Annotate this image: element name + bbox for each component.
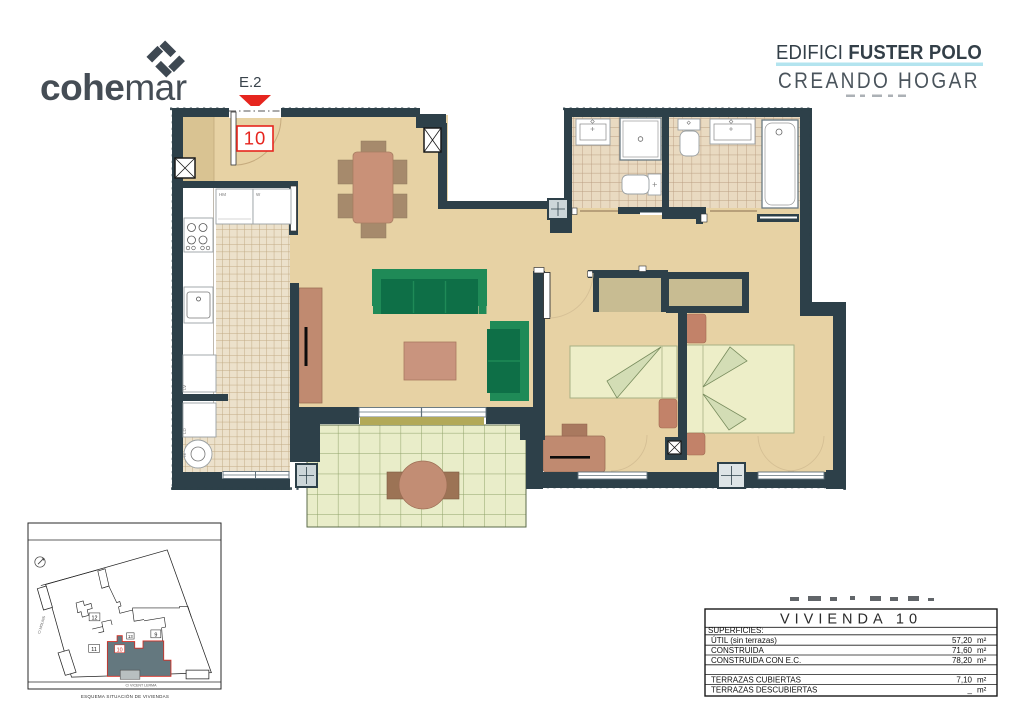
svg-text:m²: m²	[977, 686, 987, 695]
svg-text:9: 9	[154, 632, 157, 638]
svg-text:m²: m²	[977, 656, 987, 665]
svg-text:TE: TE	[182, 453, 187, 458]
svg-text:11: 11	[91, 647, 97, 653]
svg-text:SUPERFICIES:: SUPERFICIES:	[708, 626, 764, 635]
svg-text:7,10: 7,10	[956, 676, 972, 685]
svg-text:LV: LV	[182, 385, 187, 390]
svg-text:CREANDO HOGAR: CREANDO HOGAR	[778, 68, 980, 93]
svg-text:CONSTRUIDA: CONSTRUIDA	[711, 646, 765, 655]
svg-text:12: 12	[92, 615, 98, 621]
svg-text:10: 10	[244, 128, 267, 149]
svg-text:m²: m²	[977, 676, 987, 685]
svg-text:E.2: E.2	[239, 74, 262, 91]
svg-text:13: 13	[128, 634, 133, 639]
svg-text:VIVIENDA 10: VIVIENDA 10	[780, 612, 922, 628]
svg-text:m²: m²	[977, 636, 987, 645]
svg-text:C/ VICENT LERMA: C/ VICENT LERMA	[125, 684, 157, 688]
svg-text:cohemar: cohemar	[40, 67, 187, 108]
svg-text:71,60: 71,60	[952, 646, 973, 655]
svg-text:TERRAZAS CUBIERTAS: TERRAZAS CUBIERTAS	[711, 676, 801, 685]
svg-text:10: 10	[117, 647, 123, 653]
svg-text:CONSTRUIDA CON E.C.: CONSTRUIDA CON E.C.	[711, 656, 801, 665]
svg-text:EDIFICI FUSTER POLO: EDIFICI FUSTER POLO	[776, 41, 982, 64]
svg-text:78,20: 78,20	[952, 656, 973, 665]
svg-text:_: _	[967, 686, 973, 695]
svg-text:ÚTIL (sin terrazas): ÚTIL (sin terrazas)	[711, 636, 777, 645]
svg-text:LD: LD	[182, 427, 187, 434]
svg-text:ESQUEMA SITUACIÓN DE VIVIEN: ESQUEMA SITUACIÓN DE VIVIENDAS	[81, 693, 169, 699]
svg-text:TERRAZAS DESCUBIERTAS: TERRAZAS DESCUBIERTAS	[711, 686, 817, 695]
svg-text:HM: HM	[219, 192, 226, 197]
svg-text:57,20: 57,20	[952, 636, 973, 645]
svg-text:m²: m²	[977, 646, 987, 655]
